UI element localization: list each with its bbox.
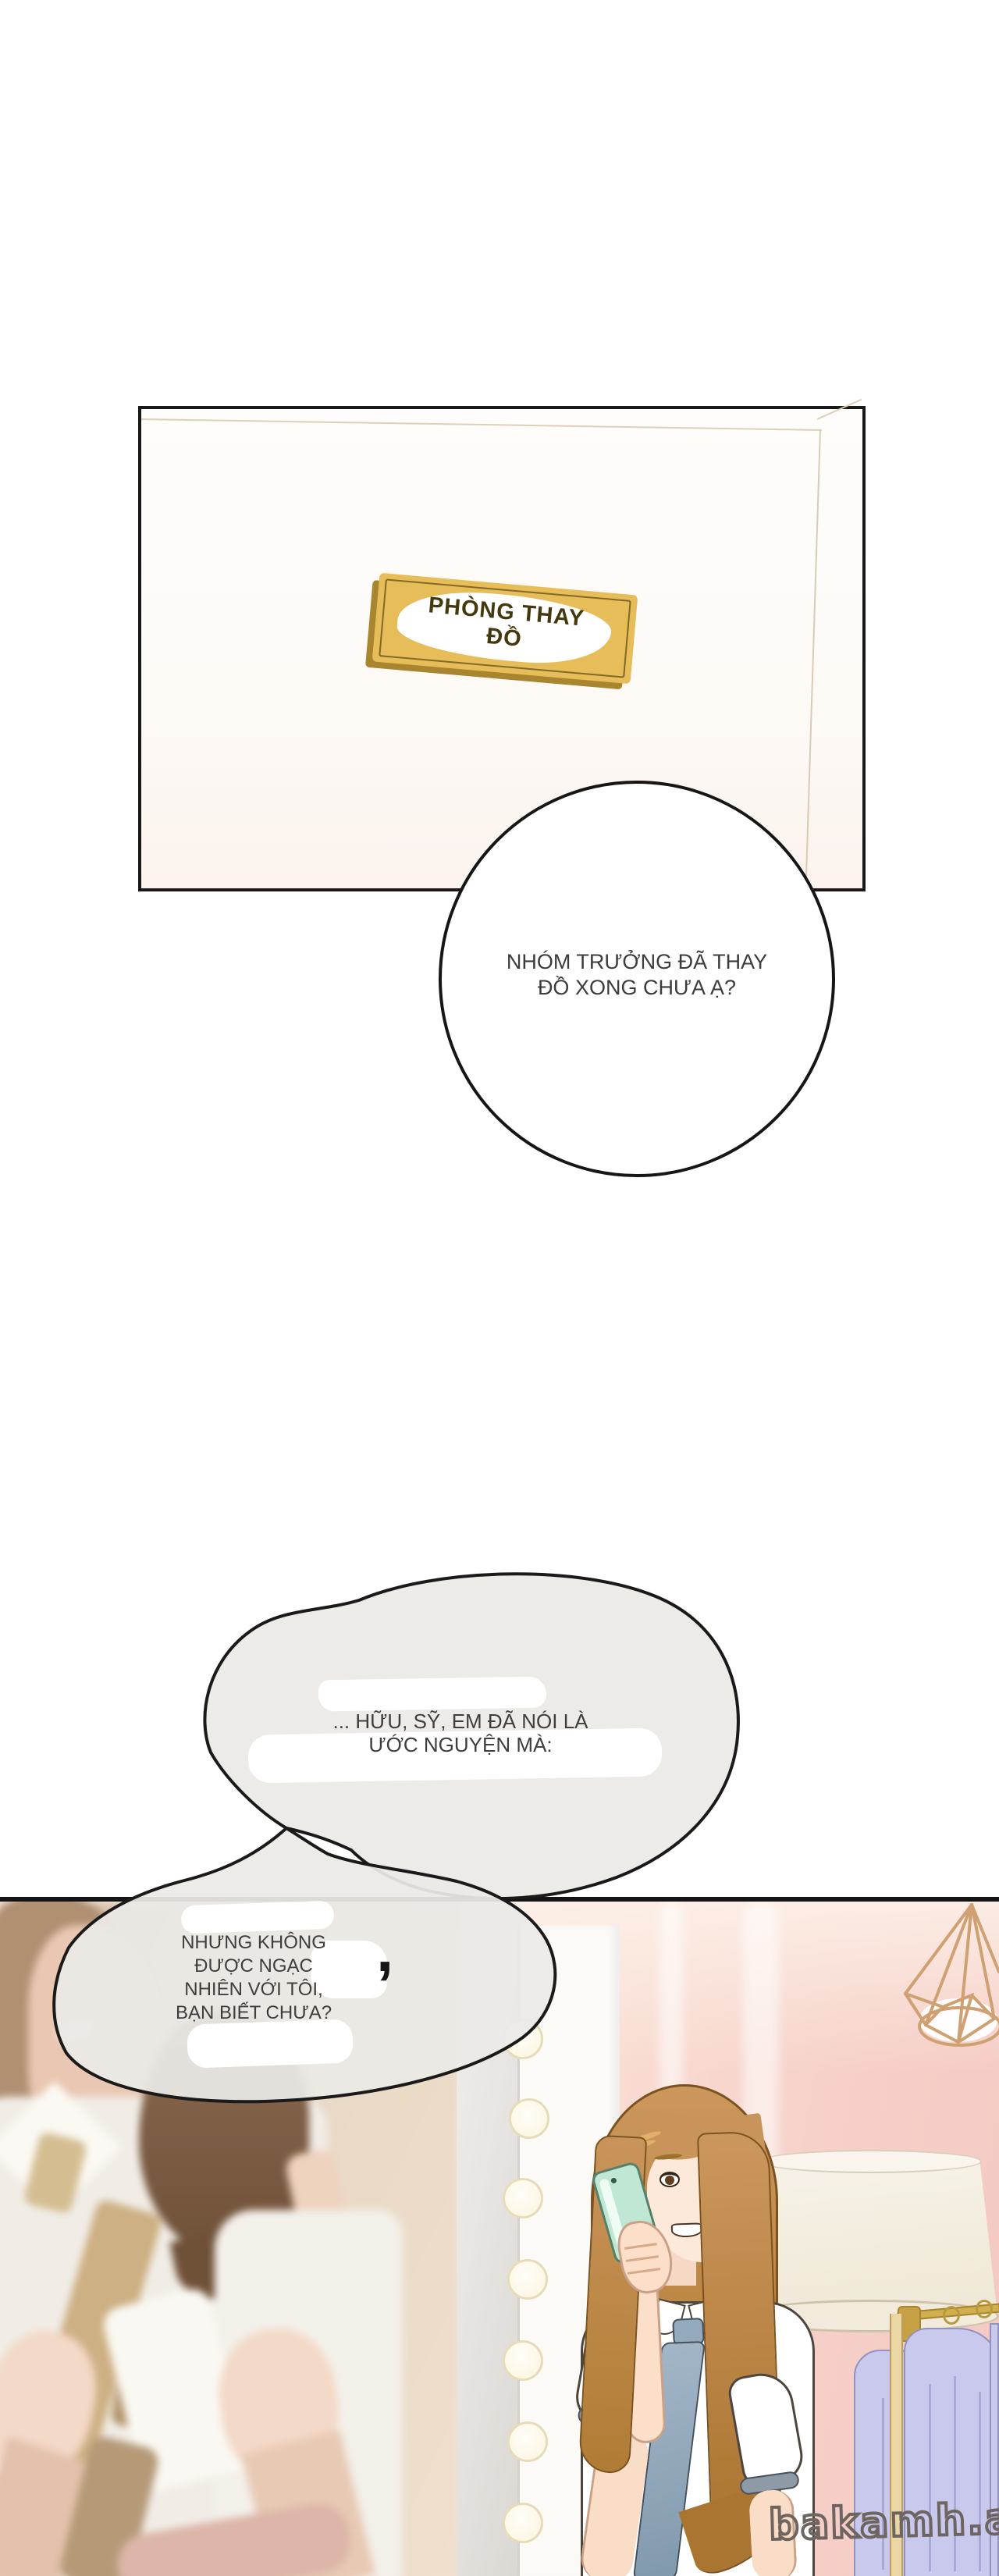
ceiling-line-right — [817, 399, 862, 420]
bubble1-line2: ĐỒ XONG CHƯA Ạ? — [442, 975, 832, 1001]
bubble3-line4: BẠN BIẾT CHƯA? — [164, 2001, 343, 2025]
redaction-blob — [187, 2019, 354, 2068]
ceiling-line-left — [141, 418, 822, 431]
phone-woman-eye-left — [659, 2172, 680, 2187]
floor-lamp-top — [759, 2150, 982, 2173]
bubble1-line1: NHÓM TRƯỞNG ĐÃ THAY — [442, 949, 832, 975]
phone-camera-dot — [610, 2177, 617, 2184]
redaction-blob — [318, 1676, 547, 1711]
stray-comma-text: , — [376, 1911, 393, 1989]
mirror-bulb — [503, 2340, 543, 2381]
wall-corner-line — [805, 429, 821, 890]
hanger-hook — [976, 2300, 993, 2318]
hanger-hook — [943, 2306, 960, 2325]
bubble2-line1: ... HỮU, SỸ, EM ĐÃ NÓI LÀ — [273, 1710, 648, 1733]
iris — [665, 2176, 674, 2185]
mirror-bulb — [507, 2421, 548, 2462]
bubble3-line2: ĐƯỢC NGẠC — [164, 1955, 343, 1978]
comic-page: PHÒNG THAY ĐỒ NHÓM TRƯỞNG ĐÃ THAY ĐỒ XON… — [0, 0, 999, 2576]
bubble3-line3: NHIÊN VỚI TÔI, — [164, 1978, 343, 2001]
speech-bubble-1: NHÓM TRƯỞNG ĐÃ THAY ĐỒ XONG CHƯA Ạ? — [439, 781, 835, 1177]
floor-lamp-shade — [744, 2159, 997, 2315]
door-sign: PHÒNG THAY ĐỒ — [372, 573, 638, 685]
speech-bubble-2-text: ... HỮU, SỸ, EM ĐÃ NÓI LÀ ƯỚC NGUYỆN MÀ: — [273, 1710, 648, 1756]
mirror-bulb — [507, 2259, 548, 2300]
garment-fold — [979, 2392, 981, 2571]
mirror-bulb — [503, 2503, 543, 2543]
pendant-wire-lamp — [896, 1902, 999, 2069]
bubble2-line2: ƯỚC NGUYỆN MÀ: — [273, 1733, 648, 1756]
mirror-bulb — [503, 2178, 543, 2218]
speech-bubble-1-text: NHÓM TRƯỞNG ĐÃ THAY ĐỒ XONG CHƯA Ạ? — [442, 949, 832, 1001]
dressing-room-door-panel: PHÒNG THAY ĐỒ — [138, 406, 866, 891]
bubble3-line1: NHƯNG KHÔNG — [164, 1931, 343, 1955]
speech-bubble-3-text: NHƯNG KHÔNG ĐƯỢC NGẠC NHIÊN VỚI TÔI, BẠN… — [164, 1931, 343, 2025]
redaction-blob — [180, 1901, 334, 1934]
watermark: bakamh.app — [768, 2492, 999, 2549]
